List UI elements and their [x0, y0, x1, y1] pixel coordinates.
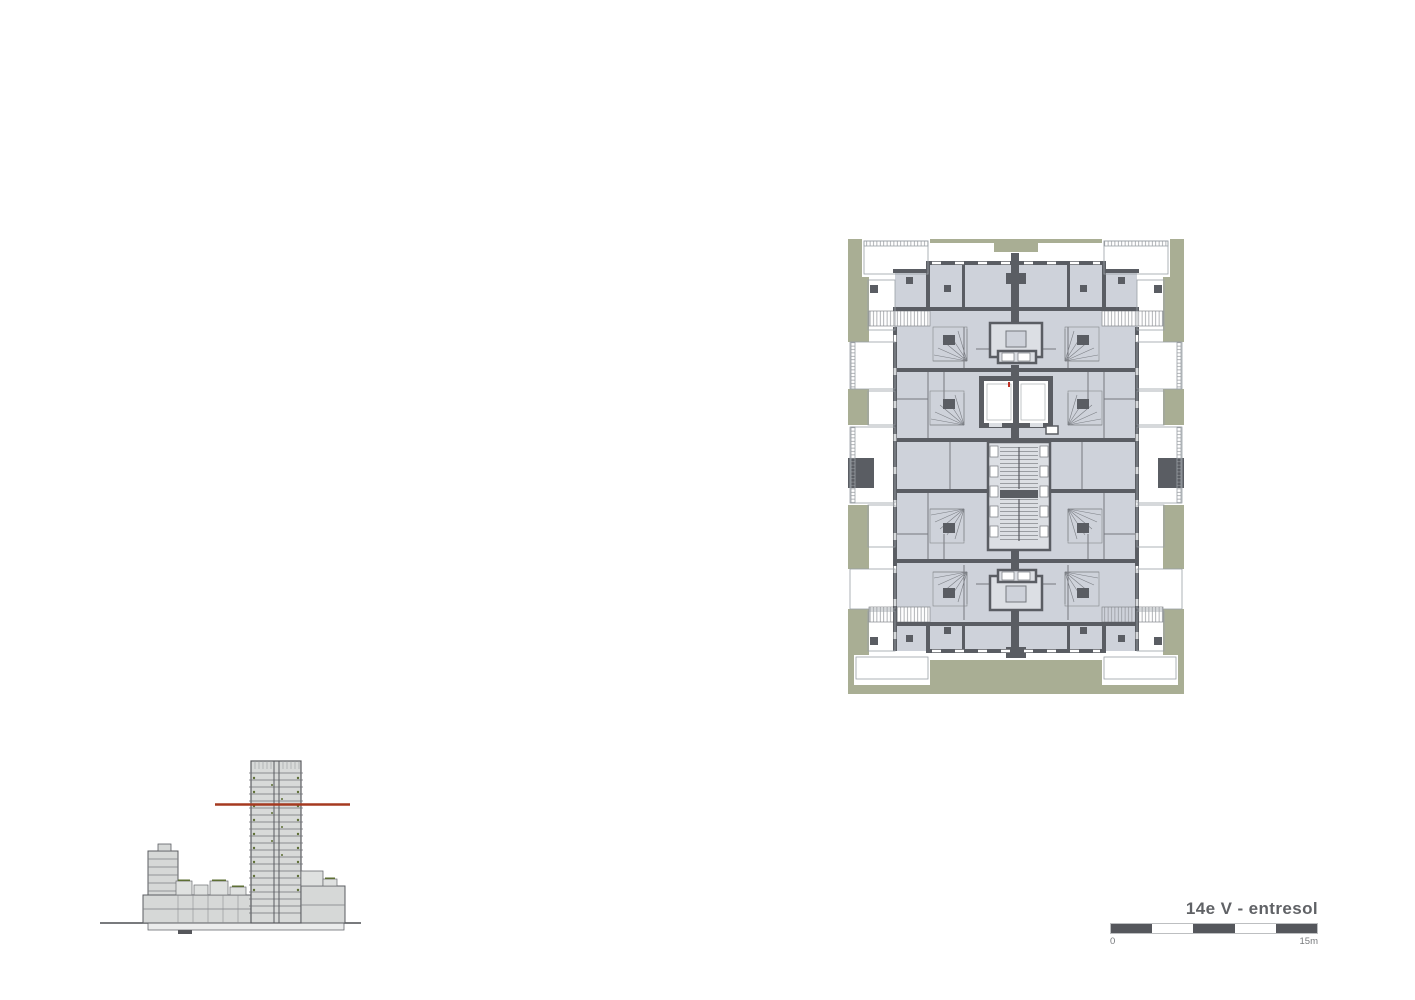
- title-block: 14e V - entresol 0 15m: [1110, 899, 1318, 947]
- scale-bar-segment: [1235, 924, 1276, 933]
- scale-labels: 0 15m: [1110, 936, 1318, 947]
- upper-core: [990, 323, 1042, 363]
- scale-bar: [1110, 923, 1318, 934]
- scale-bar-segment: [1193, 924, 1234, 933]
- drawing-sheet: 14e V - entresol 0 15m: [0, 0, 1415, 1000]
- scale-bar-segment: [1276, 924, 1317, 933]
- scale-bar-segment: [1152, 924, 1193, 933]
- floor-plan-drawing: [848, 239, 1184, 694]
- right-podium: [301, 871, 345, 923]
- building-section-drawing: [98, 753, 368, 945]
- scale-end-label: 15m: [1300, 936, 1318, 947]
- elevator-core: [979, 376, 1058, 434]
- scale-bar-segment: [1111, 924, 1152, 933]
- central-stair-core: [988, 442, 1050, 550]
- elevator-marker: [1008, 382, 1010, 387]
- tower: [249, 761, 303, 923]
- drawing-title: 14e V - entresol: [1110, 899, 1318, 919]
- ground-line: [100, 923, 361, 934]
- lower-core: [990, 570, 1042, 610]
- scale-start-label: 0: [1110, 936, 1115, 947]
